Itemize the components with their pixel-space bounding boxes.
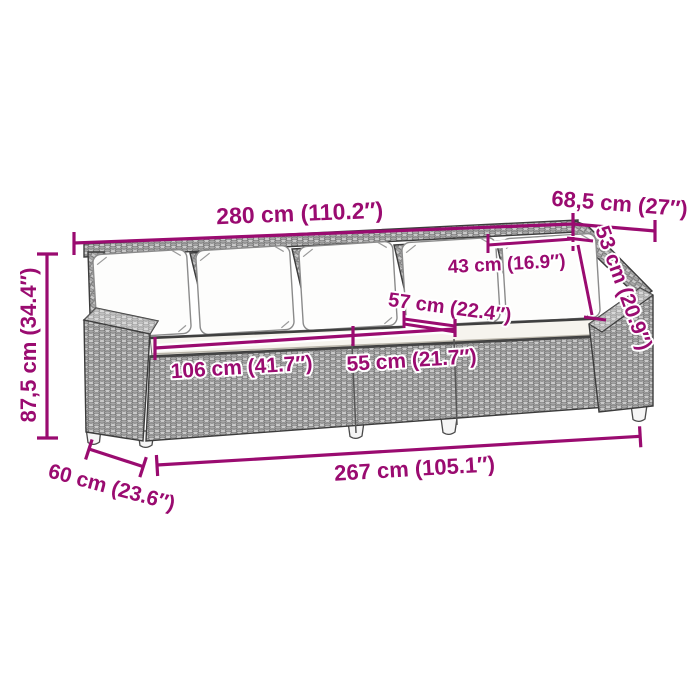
back-pillow-2 (196, 245, 295, 335)
leg-4 (441, 418, 457, 434)
tick-mark (640, 426, 641, 447)
dimension-label-base-width: 267 cm (105.1″) (333, 451, 495, 486)
dimension-label-overall-width: 280 cm (110.2″) (216, 197, 384, 229)
dimension-label-overall-height: 87,5 cm (34.4″) (16, 268, 41, 423)
back-pillow-3 (299, 241, 398, 331)
tick-mark (156, 455, 157, 476)
dimension-label-overall-depth: 68,5 cm (27″) (551, 186, 689, 222)
sofa-dimension-drawing: 280 cm (110.2″) 68,5 cm (27″) 43 cm (16.… (0, 0, 700, 700)
product-dimension-diagram: 280 cm (110.2″) 68,5 cm (27″) 43 cm (16.… (0, 0, 700, 700)
dim-overall-height: 87,5 cm (34.4″) (16, 254, 58, 438)
